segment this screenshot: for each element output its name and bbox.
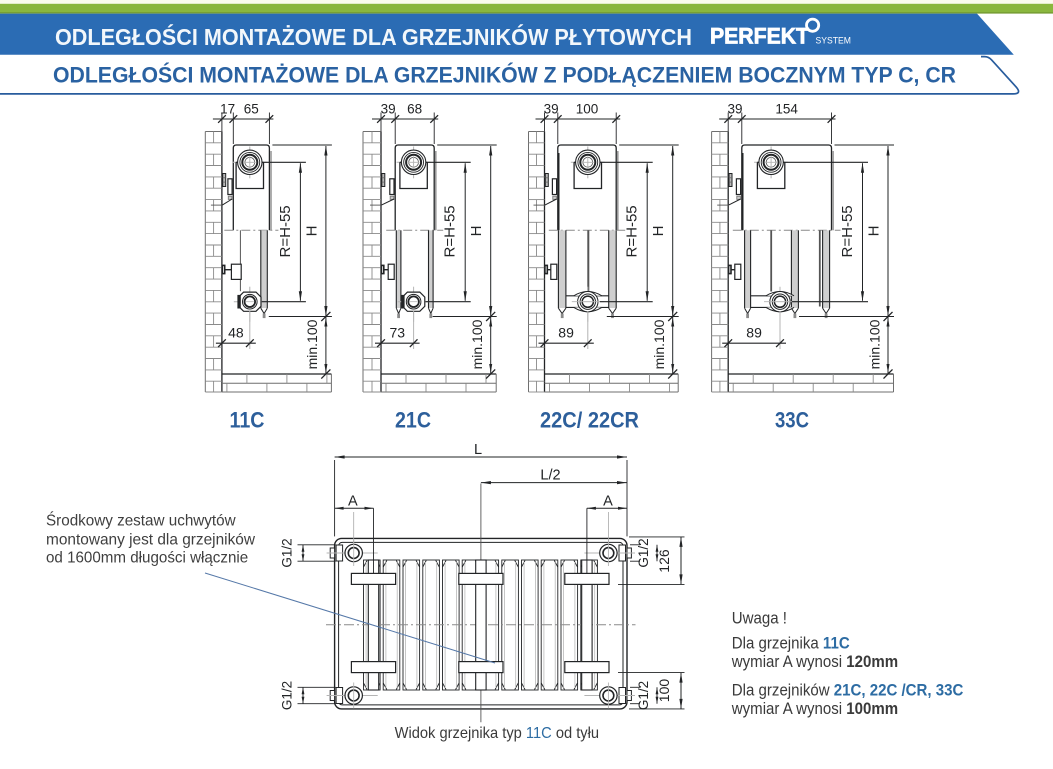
svg-text:Uwaga !: Uwaga ! — [732, 609, 787, 628]
svg-text:22C/ 22CR: 22C/ 22CR — [540, 408, 639, 433]
svg-text:39: 39 — [727, 102, 742, 117]
svg-text:39: 39 — [544, 102, 559, 117]
svg-text:126: 126 — [656, 549, 672, 573]
svg-text:11C: 11C — [230, 408, 265, 433]
svg-text:L: L — [474, 442, 482, 458]
svg-text:Dla grzejników 21C, 22C /CR, 3: Dla grzejników 21C, 22C /CR, 33C — [732, 681, 964, 700]
svg-text:48: 48 — [228, 325, 244, 341]
svg-text:L/2: L/2 — [540, 468, 560, 484]
svg-text:wymiar A wynosi 120mm: wymiar A wynosi 120mm — [731, 652, 898, 671]
svg-text:SYSTEM: SYSTEM — [816, 35, 851, 46]
svg-text:ODLEGŁOŚCI MONTAŻOWE DLA GRZEJ: ODLEGŁOŚCI MONTAŻOWE DLA GRZEJNIKÓW Z PO… — [53, 63, 956, 88]
svg-text:min.100: min.100 — [866, 319, 882, 369]
svg-text:100: 100 — [656, 679, 672, 703]
svg-text:PERFEKT: PERFEKT — [710, 23, 809, 48]
svg-text:G1/2: G1/2 — [636, 538, 651, 567]
svg-text:A: A — [348, 493, 358, 509]
svg-text:100: 100 — [576, 102, 599, 117]
svg-text:G1/2: G1/2 — [280, 538, 295, 567]
svg-text:154: 154 — [775, 102, 798, 117]
svg-text:wymiar A wynosi 100mm: wymiar A wynosi 100mm — [731, 699, 898, 718]
svg-text:H: H — [866, 226, 883, 237]
svg-text:H: H — [303, 226, 320, 237]
svg-text:89: 89 — [558, 325, 574, 341]
svg-text:89: 89 — [746, 325, 762, 341]
svg-text:min.100: min.100 — [651, 319, 667, 369]
svg-text:A: A — [603, 493, 613, 509]
svg-text:21C: 21C — [395, 408, 431, 433]
svg-text:od 1600mm długości włącznie: od 1600mm długości włącznie — [46, 550, 248, 567]
svg-text:ODLEGŁOŚCI MONTAŻOWE DLA GRZ: ODLEGŁOŚCI MONTAŻOWE DLA GRZEJNIKÓW PŁYT… — [55, 23, 692, 50]
svg-text:montowany jest dla grzejników: montowany jest dla grzejników — [46, 531, 255, 548]
svg-text:G1/2: G1/2 — [636, 681, 651, 710]
svg-text:min.100: min.100 — [304, 319, 320, 369]
svg-text:R=H-55: R=H-55 — [442, 205, 459, 257]
svg-text:H: H — [468, 226, 485, 237]
svg-text:73: 73 — [390, 325, 406, 341]
svg-text:68: 68 — [407, 102, 422, 117]
svg-text:33C: 33C — [775, 408, 809, 433]
svg-text:H: H — [650, 226, 667, 237]
svg-text:Środkowy zestaw uchwytów: Środkowy zestaw uchwytów — [46, 511, 236, 530]
svg-text:G1/2: G1/2 — [280, 681, 295, 710]
svg-text:R=H-55: R=H-55 — [839, 205, 856, 257]
svg-text:17: 17 — [220, 102, 235, 117]
svg-text:39: 39 — [381, 102, 396, 117]
svg-text:Dla grzejnika 11C: Dla grzejnika 11C — [732, 634, 850, 653]
svg-text:R=H-55: R=H-55 — [624, 205, 641, 257]
svg-text:Widok grzejnika typ 11C od tył: Widok grzejnika typ 11C od tyłu — [395, 724, 599, 742]
svg-text:min.100: min.100 — [469, 319, 485, 369]
svg-text:R=H-55: R=H-55 — [277, 205, 294, 257]
svg-text:65: 65 — [244, 102, 259, 117]
